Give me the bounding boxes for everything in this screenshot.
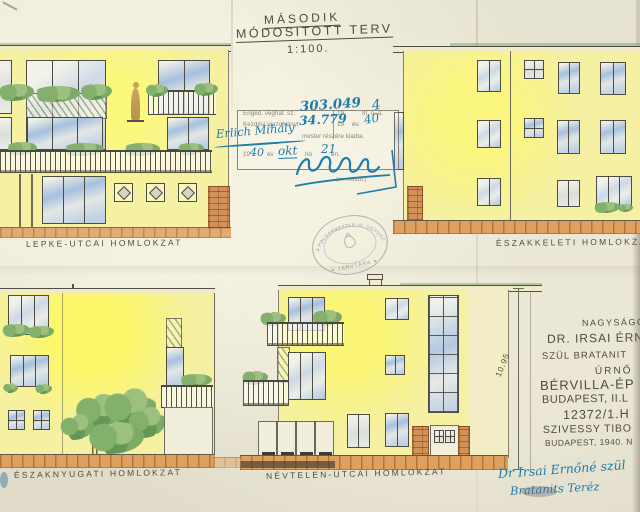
window — [10, 355, 49, 387]
dimension-line — [530, 292, 531, 470]
client-line: ÚRNŐ — [595, 365, 633, 377]
window — [600, 120, 626, 154]
ink-smudge — [521, 486, 557, 497]
approval-line-1: Dr Irsai Ernőné szül — [497, 457, 626, 481]
facade-label: LEPKE-UTCAI HOMLOKZAT — [26, 237, 183, 249]
facade-label: ÉSZAKKELETI HOMLOKZAT — [496, 236, 640, 248]
balcony-slab — [267, 343, 344, 346]
client-line: NAGYSÁGOS — [582, 317, 640, 328]
base-course — [0, 227, 231, 238]
ornament-window — [33, 410, 50, 430]
window — [558, 62, 580, 94]
client-line: BUDAPEST, 1940. N — [545, 436, 633, 448]
window — [385, 298, 409, 320]
balcony-slab — [0, 170, 212, 173]
wall-joint — [510, 51, 511, 220]
ornament-window — [8, 410, 25, 430]
stamp-row1-label: Enged. véghat. sz. — [243, 110, 295, 117]
title-line-2: MÓDOSITOTT TERV — [236, 22, 393, 43]
porch-post — [31, 174, 33, 227]
statue-pedestal — [127, 120, 144, 122]
base-shadow — [240, 461, 335, 468]
ornament-window — [524, 118, 544, 138]
dimension-line — [518, 288, 519, 470]
window — [557, 120, 580, 154]
diamond-ornament — [114, 183, 133, 202]
hand-start-year: 40 — [363, 110, 380, 126]
stamp-row3-printed: mester részére kiadta. — [302, 133, 364, 140]
ornament-window — [524, 60, 544, 79]
crease — [231, 0, 233, 108]
client-line: SZIVESSY TIBO — [543, 422, 632, 436]
base-course — [213, 457, 241, 468]
window — [477, 178, 501, 206]
window — [557, 180, 580, 207]
dimension-tick — [513, 288, 524, 289]
window — [600, 62, 626, 95]
brick-patch — [407, 186, 423, 221]
client-line: 12372/1.H — [563, 407, 630, 422]
trellis-panel — [166, 318, 182, 348]
title-scale: 1:100. — [287, 43, 330, 56]
seal-bottom-text: ✶ TERVTÁRA ✶ — [330, 257, 379, 274]
window — [477, 60, 501, 92]
porch-post — [295, 421, 297, 457]
window — [347, 414, 370, 448]
porch-post — [314, 421, 316, 457]
base-course — [0, 454, 215, 468]
client-line: BUDAPEST, II.L — [542, 392, 629, 406]
hand-date-year: 40 — [250, 146, 264, 159]
porch-post — [19, 174, 21, 227]
window — [288, 352, 326, 400]
window-group — [42, 176, 106, 224]
stamp-row4-year: 19 — [243, 151, 250, 158]
porch-opening — [164, 407, 213, 456]
diamond-ornament-inner — [116, 185, 130, 199]
statue — [131, 88, 140, 120]
diamond-ornament — [178, 183, 197, 202]
balcony-slab — [243, 403, 289, 406]
window — [477, 120, 501, 148]
brick-pier — [208, 186, 230, 229]
facade-label: ÉSZAKNYUGATI HOMLOKZAT — [14, 467, 182, 480]
stamp-row4-ev: év — [267, 151, 274, 158]
door-window — [434, 430, 444, 443]
stamp-row2-right: év. — [352, 121, 360, 128]
ink-smudge — [0, 472, 8, 488]
window — [385, 413, 409, 447]
official-signature — [293, 146, 401, 196]
client-line: BÉRVILLA-ÉP — [540, 376, 635, 393]
client-line: DR. IRSAI ÉRN — [547, 330, 640, 346]
diamond-ornament-inner — [180, 185, 194, 199]
base-course — [393, 220, 640, 234]
fold-mark — [3, 1, 18, 10]
stairwell-window — [428, 295, 459, 413]
diamond-ornament-inner — [148, 185, 162, 199]
door-window — [445, 430, 455, 443]
porch-post — [276, 421, 278, 457]
hand-start-number: 34.779 — [299, 111, 348, 128]
drawing-sheet: MÁSODIK MÓDOSITOTT TERV 1:100. — [0, 0, 640, 512]
balcony-railing — [161, 385, 213, 408]
window — [385, 355, 405, 375]
client-line: SZÜL BRATANIT — [542, 350, 627, 362]
sheet-edge — [632, 230, 640, 512]
diamond-ornament — [146, 183, 165, 202]
